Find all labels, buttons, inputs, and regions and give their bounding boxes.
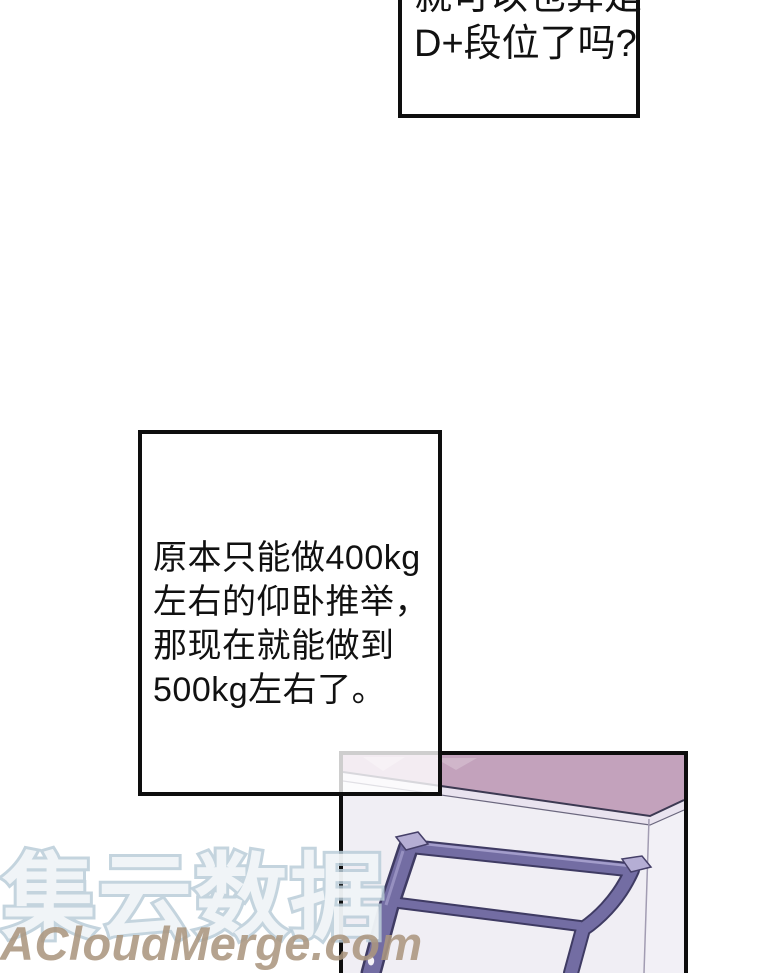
speech-bubble-top: 就可以也算是 D+段位了吗? [398, 0, 640, 118]
speech-bubble-middle: 原本只能做400kg 左右的仰卧推举， 那现在就能做到 500kg左右了。 [138, 430, 442, 796]
speech-text-middle: 原本只能做400kg 左右的仰卧推举， 那现在就能做到 500kg左右了。 [153, 536, 429, 712]
right-wall [644, 810, 684, 973]
speech-text-middle-line4: 500kg左右了。 [153, 668, 429, 712]
comic-page: 就可以也算是 D+段位了吗? 原本只能做400kg 左右的仰卧推举， 那现在就能… [0, 0, 760, 973]
speech-text-middle-line1: 原本只能做400kg [153, 536, 429, 580]
watermark-url: ACloudMerge.com [0, 916, 423, 971]
speech-text-middle-line2: 左右的仰卧推举， [153, 580, 429, 624]
speech-text-top-line1: 就可以也算是 [414, 0, 642, 21]
speech-text-middle-line3: 那现在就能做到 [153, 624, 429, 668]
speech-text-top-line2: D+段位了吗? [414, 21, 642, 68]
speech-text-top: 就可以也算是 D+段位了吗? [414, 0, 642, 68]
